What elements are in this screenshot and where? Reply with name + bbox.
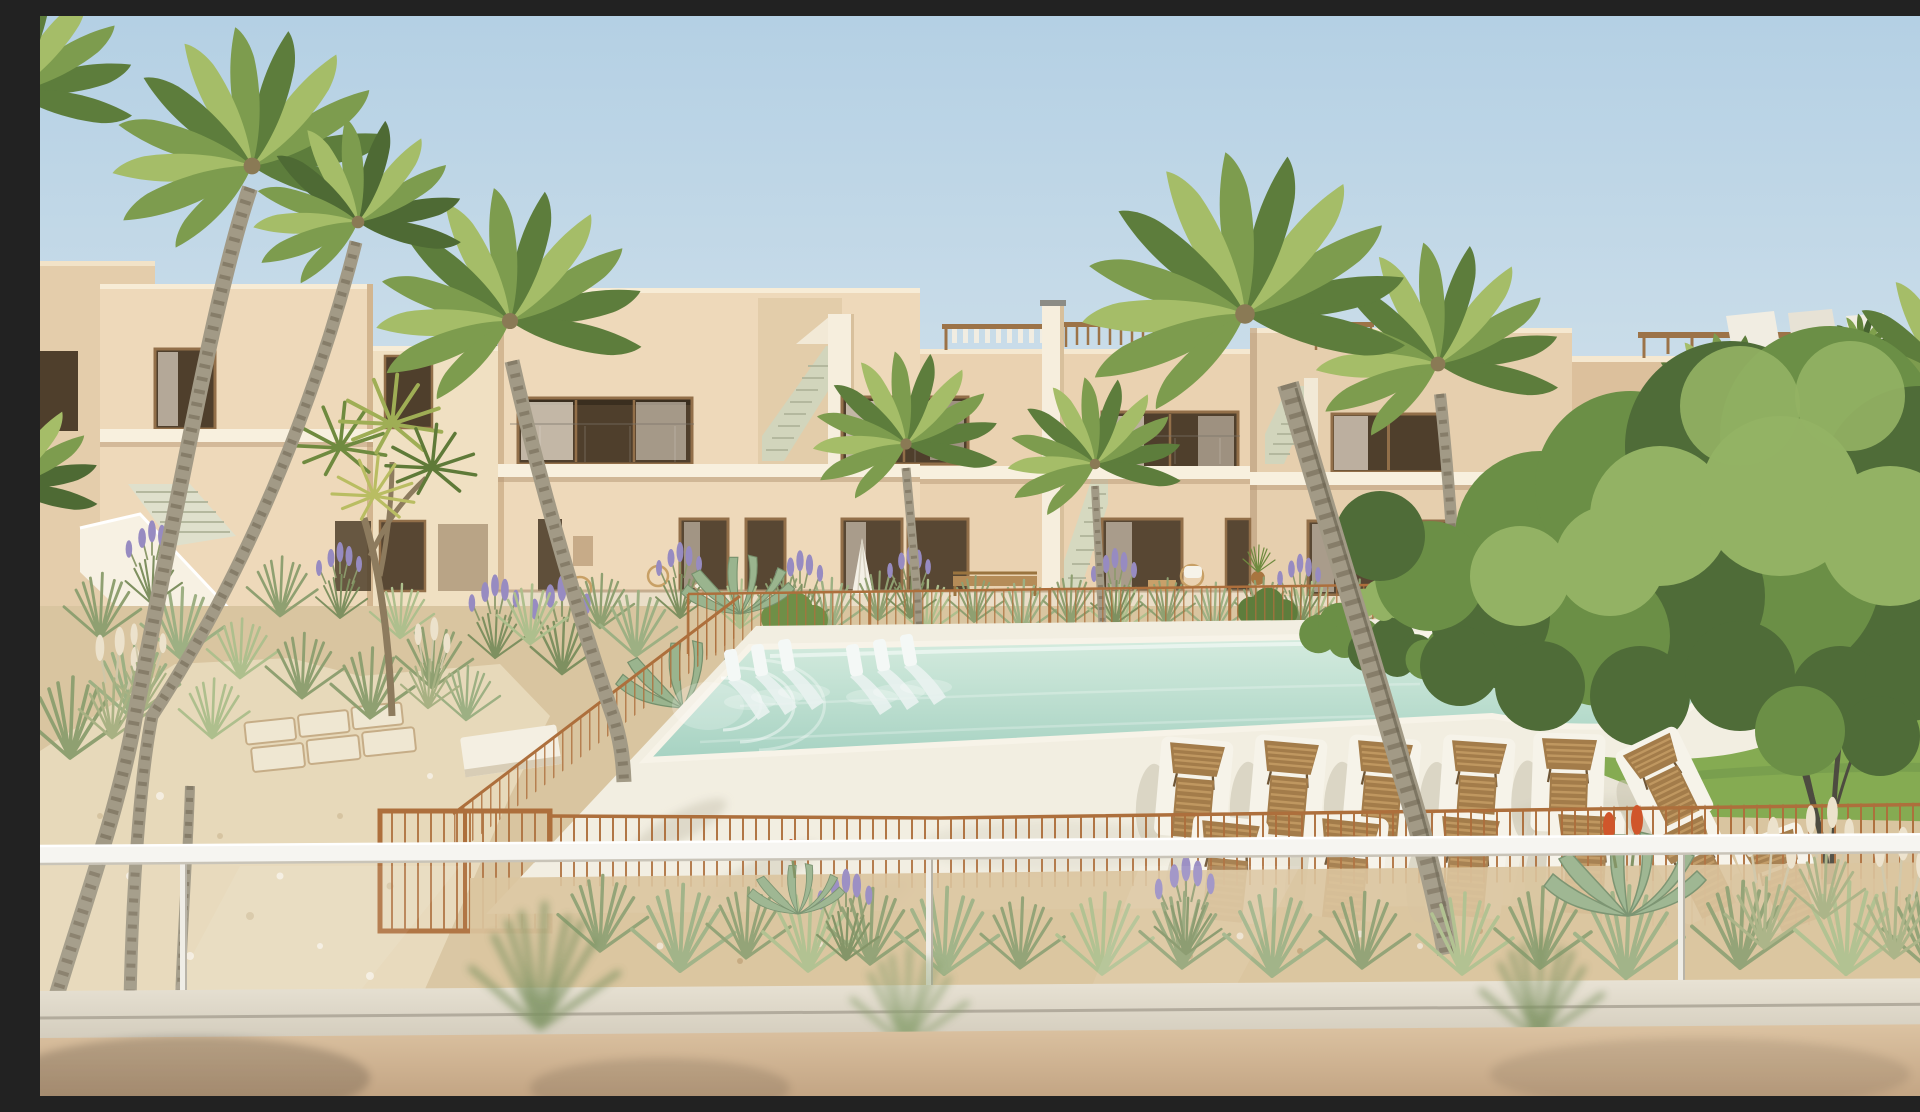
scene-canvas xyxy=(40,16,1920,1096)
architectural-render xyxy=(40,16,1920,1096)
